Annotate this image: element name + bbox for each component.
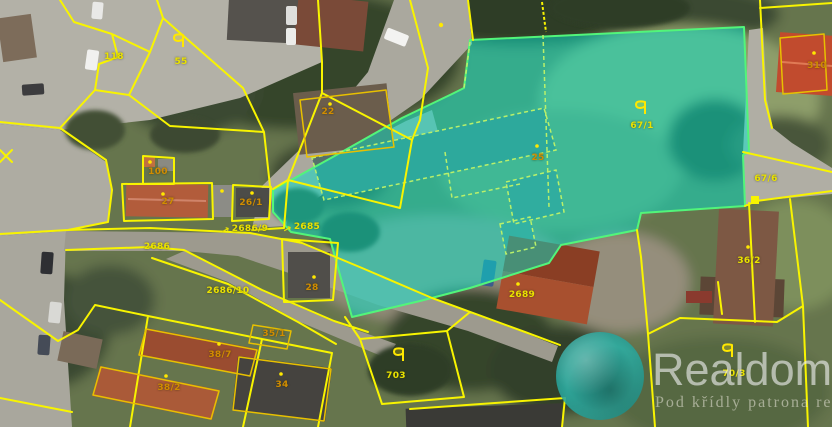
watermark-brand: Realdomus [652, 344, 832, 396]
parcel-label: 2686/10 [207, 286, 250, 296]
parcel-label: 55 [174, 57, 187, 67]
building-label: 22 [321, 107, 334, 117]
p-flag-icon [394, 348, 403, 361]
parcel-label: 36/2 [737, 256, 760, 266]
selected-parcel-highlight[interactable] [273, 27, 749, 317]
p-flag-icon [174, 34, 183, 47]
parcel-label: 2686 [144, 242, 170, 252]
parcel-label: 2685 [294, 222, 320, 232]
building-label: 38/7 [208, 350, 231, 360]
building-label: 28 [305, 283, 318, 293]
parcel-label: 2689 [509, 290, 535, 300]
building-label: 25 [531, 153, 544, 163]
building-label: 100 [148, 167, 168, 177]
building-label: 26/1 [239, 198, 262, 208]
building-label: 310 [807, 61, 827, 71]
realdomus-logo-icon [556, 332, 644, 420]
parcel-label: 67/6 [754, 174, 777, 184]
boundary-dashed-segment [542, 2, 546, 32]
building-label: 35/1 [262, 329, 285, 339]
parcel-label: 2686/9 [232, 224, 268, 234]
watermark-tagline: Pod křídly patrona real [655, 394, 832, 412]
parcel-label: 67/1 [630, 121, 653, 131]
building-label: 27 [161, 197, 174, 207]
cadastral-map[interactable]: 118 55 22 100 27 26/1 2686/9 2685 2686 2… [0, 0, 832, 427]
parcel-label: 118 [104, 52, 124, 62]
parcel-label: 703 [386, 371, 406, 381]
building-label: 34 [275, 380, 288, 390]
boundary-node-marker [751, 196, 759, 204]
building-label: 38/2 [157, 383, 180, 393]
